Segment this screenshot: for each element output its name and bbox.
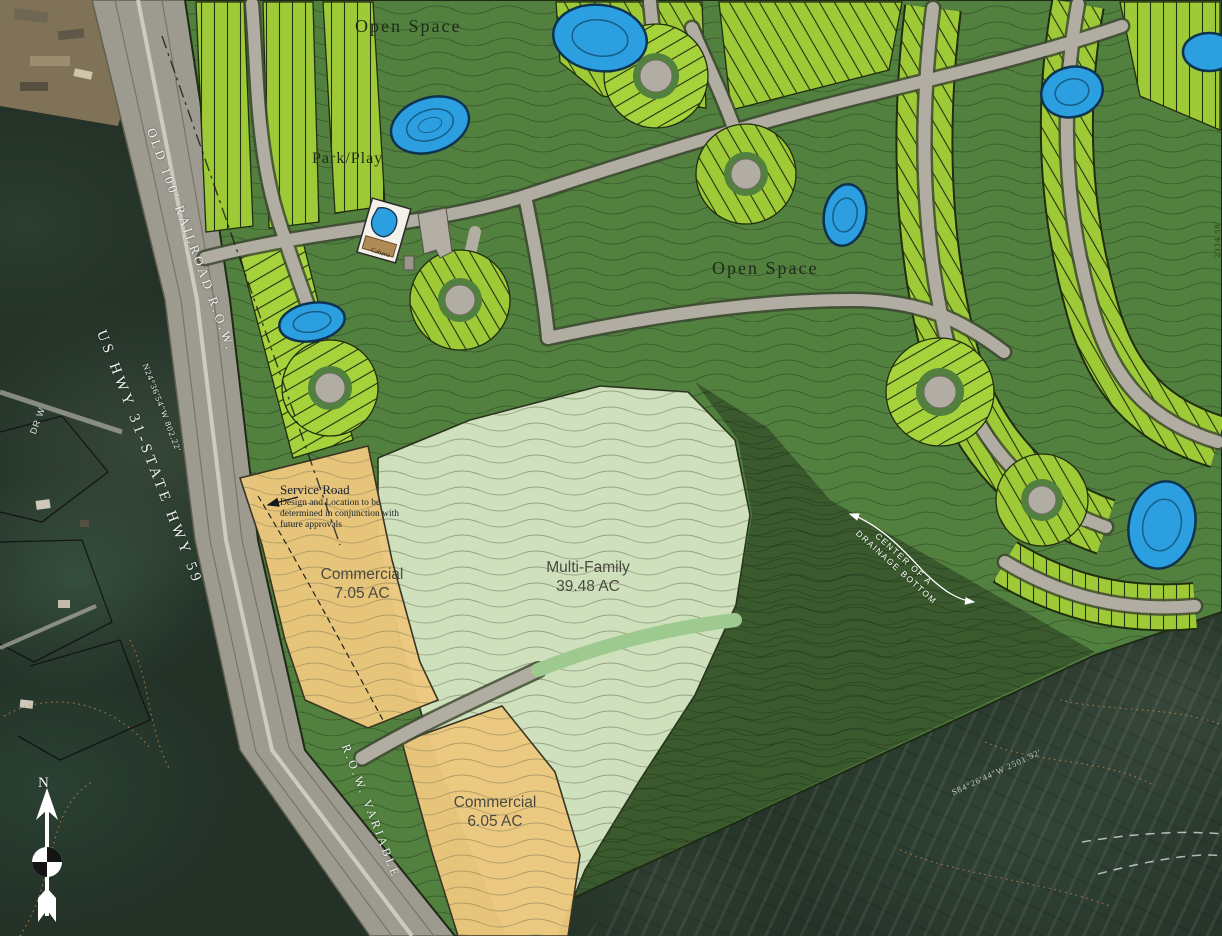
site-plan-graphics — [0, 0, 1222, 936]
offsite-roads — [0, 392, 122, 648]
north-arrow — [32, 788, 62, 922]
offsite-parcels — [0, 416, 150, 760]
site-plan-map: Open Space Park/Play Open Space Service … — [0, 0, 1222, 936]
trail-lines — [1082, 832, 1222, 874]
offsite-houses — [20, 499, 89, 709]
